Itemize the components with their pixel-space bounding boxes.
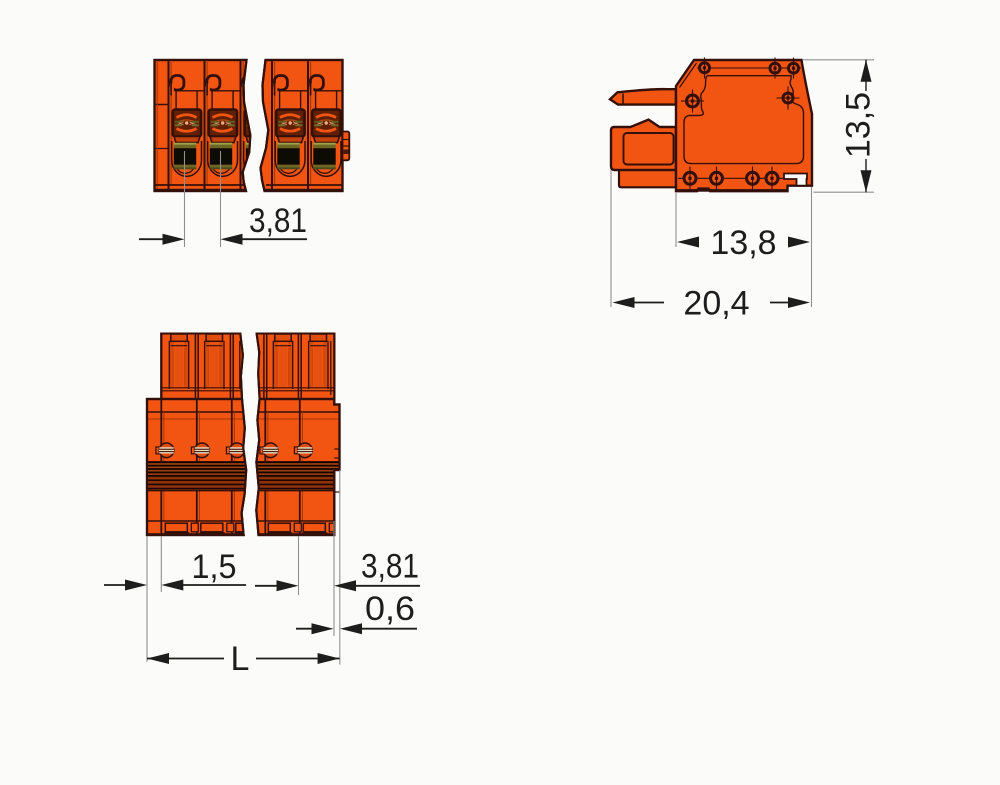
svg-text:13,5: 13,5: [840, 92, 878, 158]
svg-text:3,81: 3,81: [361, 548, 419, 586]
svg-text:L: L: [231, 640, 250, 678]
svg-text:1,5: 1,5: [192, 548, 237, 586]
svg-text:3,81: 3,81: [249, 202, 307, 240]
svg-text:13,8: 13,8: [710, 224, 776, 262]
svg-text:0,6: 0,6: [365, 590, 415, 628]
svg-text:20,4: 20,4: [683, 285, 749, 323]
